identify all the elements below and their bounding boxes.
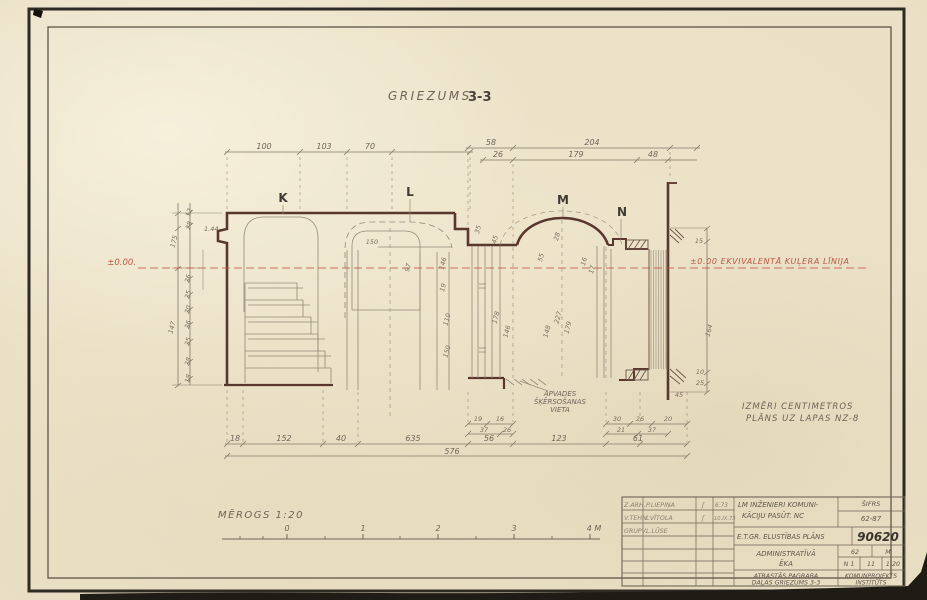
- dim-label: 148: [542, 324, 553, 338]
- dim-label: 204: [584, 138, 599, 147]
- units-note-line1: IZMĒRI CENTIMETROS: [742, 401, 853, 412]
- dim-label: 150: [366, 238, 378, 246]
- dim-label: 61: [633, 434, 643, 443]
- dim-label: 123: [551, 434, 566, 443]
- dim-label: 37: [648, 426, 657, 434]
- scale-tick-1: 1: [360, 524, 365, 533]
- dim-label: 25: [183, 336, 193, 346]
- scale-bar: MĒROGS 1:20 0 1 2 3 4 M: [218, 508, 601, 539]
- niche-arch-l-dashed: [345, 222, 452, 318]
- dim-label: 103: [316, 142, 331, 151]
- tb-org-line2: INSTITŪTS: [855, 580, 886, 587]
- scale-tick-4m: 4 M: [587, 524, 602, 533]
- dim-label: 55: [536, 252, 546, 262]
- marker-m: M: [557, 193, 569, 207]
- crossing-note-line1: APVADES: [543, 390, 577, 398]
- vault-arch-m: [517, 218, 608, 245]
- tb-row3-role: GRUPV.: [624, 528, 647, 535]
- marker-n: N: [617, 205, 627, 219]
- dim-label: 28: [552, 231, 562, 241]
- scale-tick-3: 3: [511, 524, 516, 533]
- tb-building-line1: ADMINISTRATĪVĀ: [755, 549, 816, 558]
- tb-sheet-line2: DAĻAS GRIEZUMS 3-3: [752, 580, 821, 587]
- annotations: APVADES ŠĶĒRSOŠANAS VIETA IZMĒRI CENTIME…: [534, 390, 859, 424]
- dim-label: 179: [563, 320, 574, 334]
- tb-row1-signature: ʃ: [701, 502, 705, 509]
- dim-label: 19: [438, 282, 448, 292]
- tb-cell-62: 62: [851, 549, 859, 556]
- dim-label: 147: [167, 320, 178, 335]
- dim-label-total: 576: [444, 447, 459, 456]
- tb-cipher-value: 62-87: [861, 515, 882, 523]
- dim-label: 45: [490, 234, 500, 244]
- dim-label: 26: [636, 415, 644, 423]
- tb-cell-scale: 1:20: [886, 561, 900, 568]
- dim-label: 16: [579, 256, 589, 266]
- dim-label: 164: [704, 323, 715, 337]
- elevation-label: 1.44: [204, 225, 218, 233]
- drawing-title-number: 3-3: [468, 90, 492, 105]
- tb-project-line1: LM INŽENIERI KOMUNI-: [738, 500, 819, 509]
- dim-label: 26: [183, 273, 193, 283]
- tb-drawing-number: 90620: [857, 530, 899, 544]
- crossing-note-line2: ŠĶĒRSOŠANAS: [534, 397, 587, 406]
- tb-row2-signature: ʃ: [701, 515, 705, 522]
- dim-label: 45: [675, 391, 683, 399]
- dim-label: 100: [256, 142, 271, 151]
- dim-label: 146: [438, 256, 449, 270]
- dim-label: 179: [568, 150, 583, 159]
- dim-label: 28: [184, 220, 194, 230]
- dim-label: 110: [442, 312, 453, 326]
- dim-label: 28: [183, 356, 193, 366]
- dim-label: 150: [442, 344, 453, 358]
- dim-label: 25: [696, 379, 704, 387]
- dim-label: 48: [648, 150, 658, 159]
- dim-label: 70: [365, 142, 375, 151]
- dim-label: 19: [474, 415, 482, 423]
- dim-label: 146: [502, 324, 513, 338]
- level-label-right: ±0.00 EKVIVALENTĀ KUĻERA LĪNIJA: [690, 256, 850, 266]
- dim-label: 26: [493, 150, 503, 159]
- tb-cell-n1: N 1: [844, 561, 855, 568]
- dim-label: 152: [276, 434, 291, 443]
- dim-label: 18: [230, 434, 240, 443]
- dim-label: 40: [336, 434, 346, 443]
- dim-label: 18: [183, 373, 193, 383]
- marker-k: K: [278, 191, 288, 205]
- dim-label: 15: [695, 237, 703, 245]
- dim-label: 97: [403, 262, 413, 273]
- dimension-lines: [172, 145, 710, 459]
- marker-l: L: [406, 185, 414, 199]
- crossing-note-line3: VIETA: [550, 406, 570, 414]
- tb-row2-date: 10.IX.73: [714, 516, 736, 522]
- dim-label: 20: [183, 304, 193, 314]
- units-note-line2: PLĀNS UZ LAPAS NZ-8: [746, 413, 859, 424]
- tb-cell-11: 11: [867, 561, 875, 568]
- tb-row1-date: 6.73: [715, 503, 728, 509]
- tb-row2-name: I.VĪTOLA: [646, 513, 673, 522]
- dim-label: 56: [484, 434, 494, 443]
- drawing-canvas: GRIEZUMS 3-3: [0, 0, 927, 600]
- dim-label: 58: [486, 138, 496, 147]
- niche-arch-k: [244, 217, 318, 372]
- tb-row3-name: L.LŪSE: [646, 526, 668, 535]
- dim-label: 26: [183, 319, 193, 329]
- scale-tick-2: 2: [435, 524, 440, 533]
- tb-row1-role: Z.ARH.: [623, 502, 646, 509]
- dim-label: 25: [183, 289, 193, 299]
- tb-plan-title: E.T.GR. ELUSTĪBAS PLĀNS: [737, 532, 825, 541]
- scale-tick-0: 0: [284, 524, 289, 533]
- dim-label: 30: [613, 415, 621, 423]
- title-block: Z.ARH. P.LIEPIŅA ʃ 6.73 V.TEHN. I.VĪTOLA…: [622, 497, 905, 587]
- dim-label: 10: [696, 368, 704, 376]
- dim-label: 37: [480, 426, 489, 434]
- blueprint-sheet: GRIEZUMS 3-3: [0, 0, 927, 600]
- tb-building-line2: ĒKA: [779, 559, 793, 568]
- tb-project-line2: KĀCIJU PASŪT. NC: [742, 511, 804, 520]
- tb-row1-name: P.LIEPIŅA: [646, 502, 675, 509]
- dim-label: 12: [184, 207, 194, 217]
- tb-cipher-label: ŠIFRS: [862, 499, 880, 508]
- section-outline: [218, 182, 677, 400]
- dim-label: 635: [405, 434, 420, 443]
- floor-hatch: [506, 379, 546, 385]
- dimension-labels: 100 103 70 58 204 26 179 48 19 16 37 26 …: [167, 138, 715, 456]
- dim-label: 26: [503, 426, 511, 434]
- dim-label: 16: [496, 415, 504, 423]
- tb-cell-m: M: [885, 549, 891, 556]
- level-label-left: ±0.00.: [107, 258, 136, 268]
- dim-label: 35: [473, 224, 483, 234]
- dim-label: 17: [587, 264, 597, 275]
- scale-label: MĒROGS 1:20: [218, 508, 304, 521]
- dim-label: 20: [664, 415, 672, 423]
- dim-label: 21: [617, 426, 625, 434]
- drawing-title-word: GRIEZUMS: [388, 89, 472, 103]
- level-line: ±0.00. ±0.00 EKVIVALENTĀ KUĻERA LĪNIJA: [107, 256, 868, 268]
